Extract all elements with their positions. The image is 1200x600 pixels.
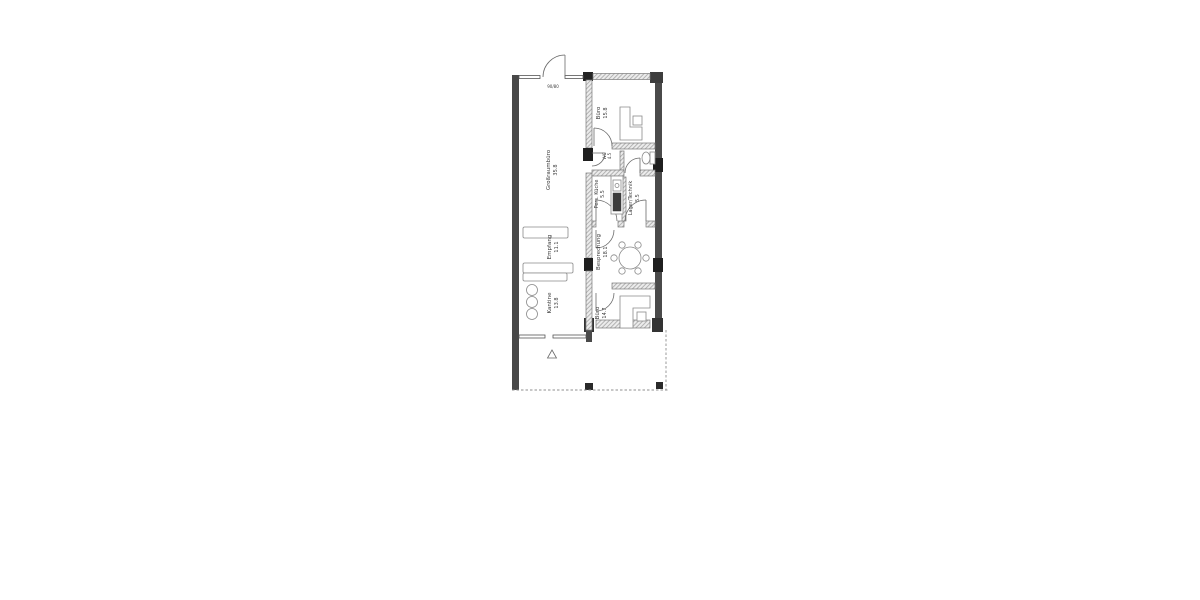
chair (619, 242, 625, 248)
middle-wall-mid (586, 173, 592, 258)
label-grossraumbuero: Großraumbüro 35.8 (546, 149, 559, 190)
buero-top-chair (633, 116, 642, 125)
room-area: 11.1 (554, 241, 560, 252)
top-window-band (593, 74, 650, 80)
room-area: 4.5 (607, 152, 612, 159)
kantine-stools (527, 285, 538, 320)
room-name: Empfang (547, 235, 553, 260)
wc-toilet (642, 152, 655, 164)
room-name: Lager/Technik (628, 181, 634, 216)
chair (635, 242, 641, 248)
buero-bottom-chair (637, 312, 646, 321)
right-outer-wall (655, 83, 662, 330)
kitchen-counter (611, 176, 623, 214)
label-buero-top: Büro 15.8 (596, 106, 609, 119)
chair (611, 255, 617, 261)
wall-below-kueche-a (592, 221, 596, 227)
chair (635, 268, 641, 274)
left-outer-wall (512, 75, 519, 390)
wall-below-wc-a (592, 170, 624, 176)
label-kantine: Kantine 13.8 (547, 292, 560, 314)
room-area: 18.1 (603, 246, 609, 257)
bottom-wall-segment-a (519, 335, 545, 338)
wall-below-wc-b (640, 170, 655, 176)
top-wall-segment-b (565, 76, 583, 79)
label-lager-technik: Lager/Technik 5.5 (628, 181, 641, 216)
entrance-door-annotation: 90/80 (547, 84, 559, 89)
top-right-corner-wall (650, 72, 663, 83)
floorplan-canvas: Großraumbüro 35.8 Empfang 11.1 Kantine 1… (0, 0, 1200, 600)
room-area: 15.8 (603, 107, 609, 118)
wall-below-kueche-b (618, 221, 624, 227)
stool (527, 309, 538, 320)
room-area: 13.8 (554, 297, 560, 308)
room-name: Großraumbüro (546, 149, 552, 190)
middle-wall-lower (586, 271, 592, 330)
bottom-right-corner-block (652, 318, 663, 332)
room-area: 5.5 (600, 190, 606, 198)
wc-right-door (625, 158, 640, 173)
middle-wall-block-1 (583, 148, 593, 161)
boundary-post-1 (585, 383, 593, 390)
room-area: 35.8 (553, 164, 559, 175)
label-pers-kueche: Pers. Küche 5.5 (594, 180, 606, 209)
triangle-symbol (548, 350, 557, 358)
wall-below-besprechung (612, 283, 655, 289)
room-area: 14.7 (602, 307, 608, 318)
room-name: Kantine (547, 292, 553, 314)
label-buero-bottom: Büro 14.7 (595, 306, 608, 319)
middle-wall-block-2 (584, 258, 593, 271)
label-besprechung: Besprechung 18.1 (596, 234, 609, 270)
entrance-door (543, 55, 565, 77)
chair (643, 255, 649, 261)
middle-wall-stub (586, 330, 592, 342)
besprechung-table (611, 242, 649, 274)
wall-below-buero-top (612, 143, 655, 149)
room-name: Büro (595, 306, 601, 319)
label-wc: WC 4.5 (602, 152, 612, 159)
wall-between-wcs (620, 151, 624, 170)
room-name: Besprechung (596, 234, 602, 270)
wall-below-kueche-c (646, 221, 655, 227)
middle-wall-upper (586, 80, 592, 148)
top-wall-segment-a (519, 76, 540, 79)
floorplan-drawing: Großraumbüro 35.8 Empfang 11.1 Kantine 1… (0, 0, 1200, 600)
stool (527, 297, 538, 308)
buero-top-desk (620, 107, 642, 140)
buero-top-door (594, 128, 612, 146)
boundary-post-2 (656, 382, 663, 389)
right-wall-block-2 (653, 258, 663, 272)
bottom-wall-segment-b (553, 335, 586, 338)
room-area: 5.5 (635, 194, 641, 202)
stool (527, 285, 538, 296)
chair (619, 268, 625, 274)
room-name: Pers. Küche (594, 180, 600, 209)
room-name: Büro (596, 106, 602, 119)
